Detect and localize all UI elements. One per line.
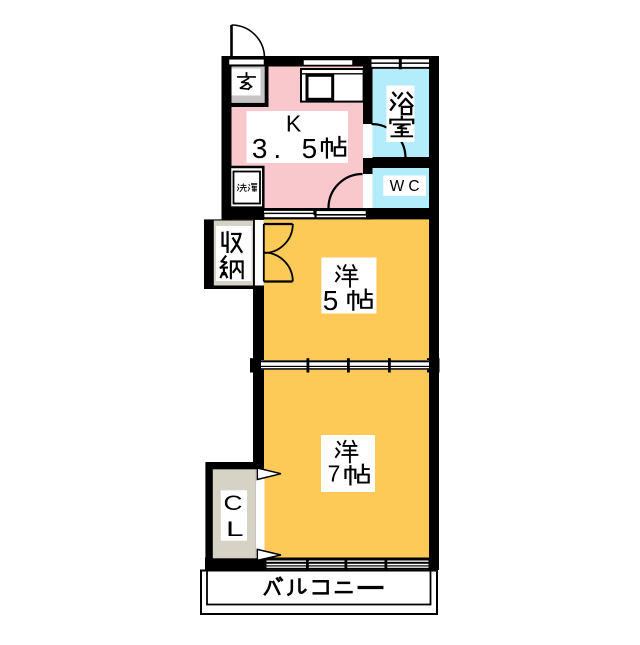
svg-text:L: L <box>226 517 244 541</box>
svg-text:W: W <box>390 178 405 195</box>
svg-text:C: C <box>224 491 243 515</box>
svg-text:5: 5 <box>323 285 339 316</box>
svg-text:7: 7 <box>328 461 341 487</box>
svg-text:5: 5 <box>302 133 318 164</box>
svg-text:.: . <box>273 133 281 164</box>
svg-text:K: K <box>286 111 302 137</box>
svg-text:C: C <box>408 178 419 195</box>
svg-text:3: 3 <box>252 133 268 164</box>
